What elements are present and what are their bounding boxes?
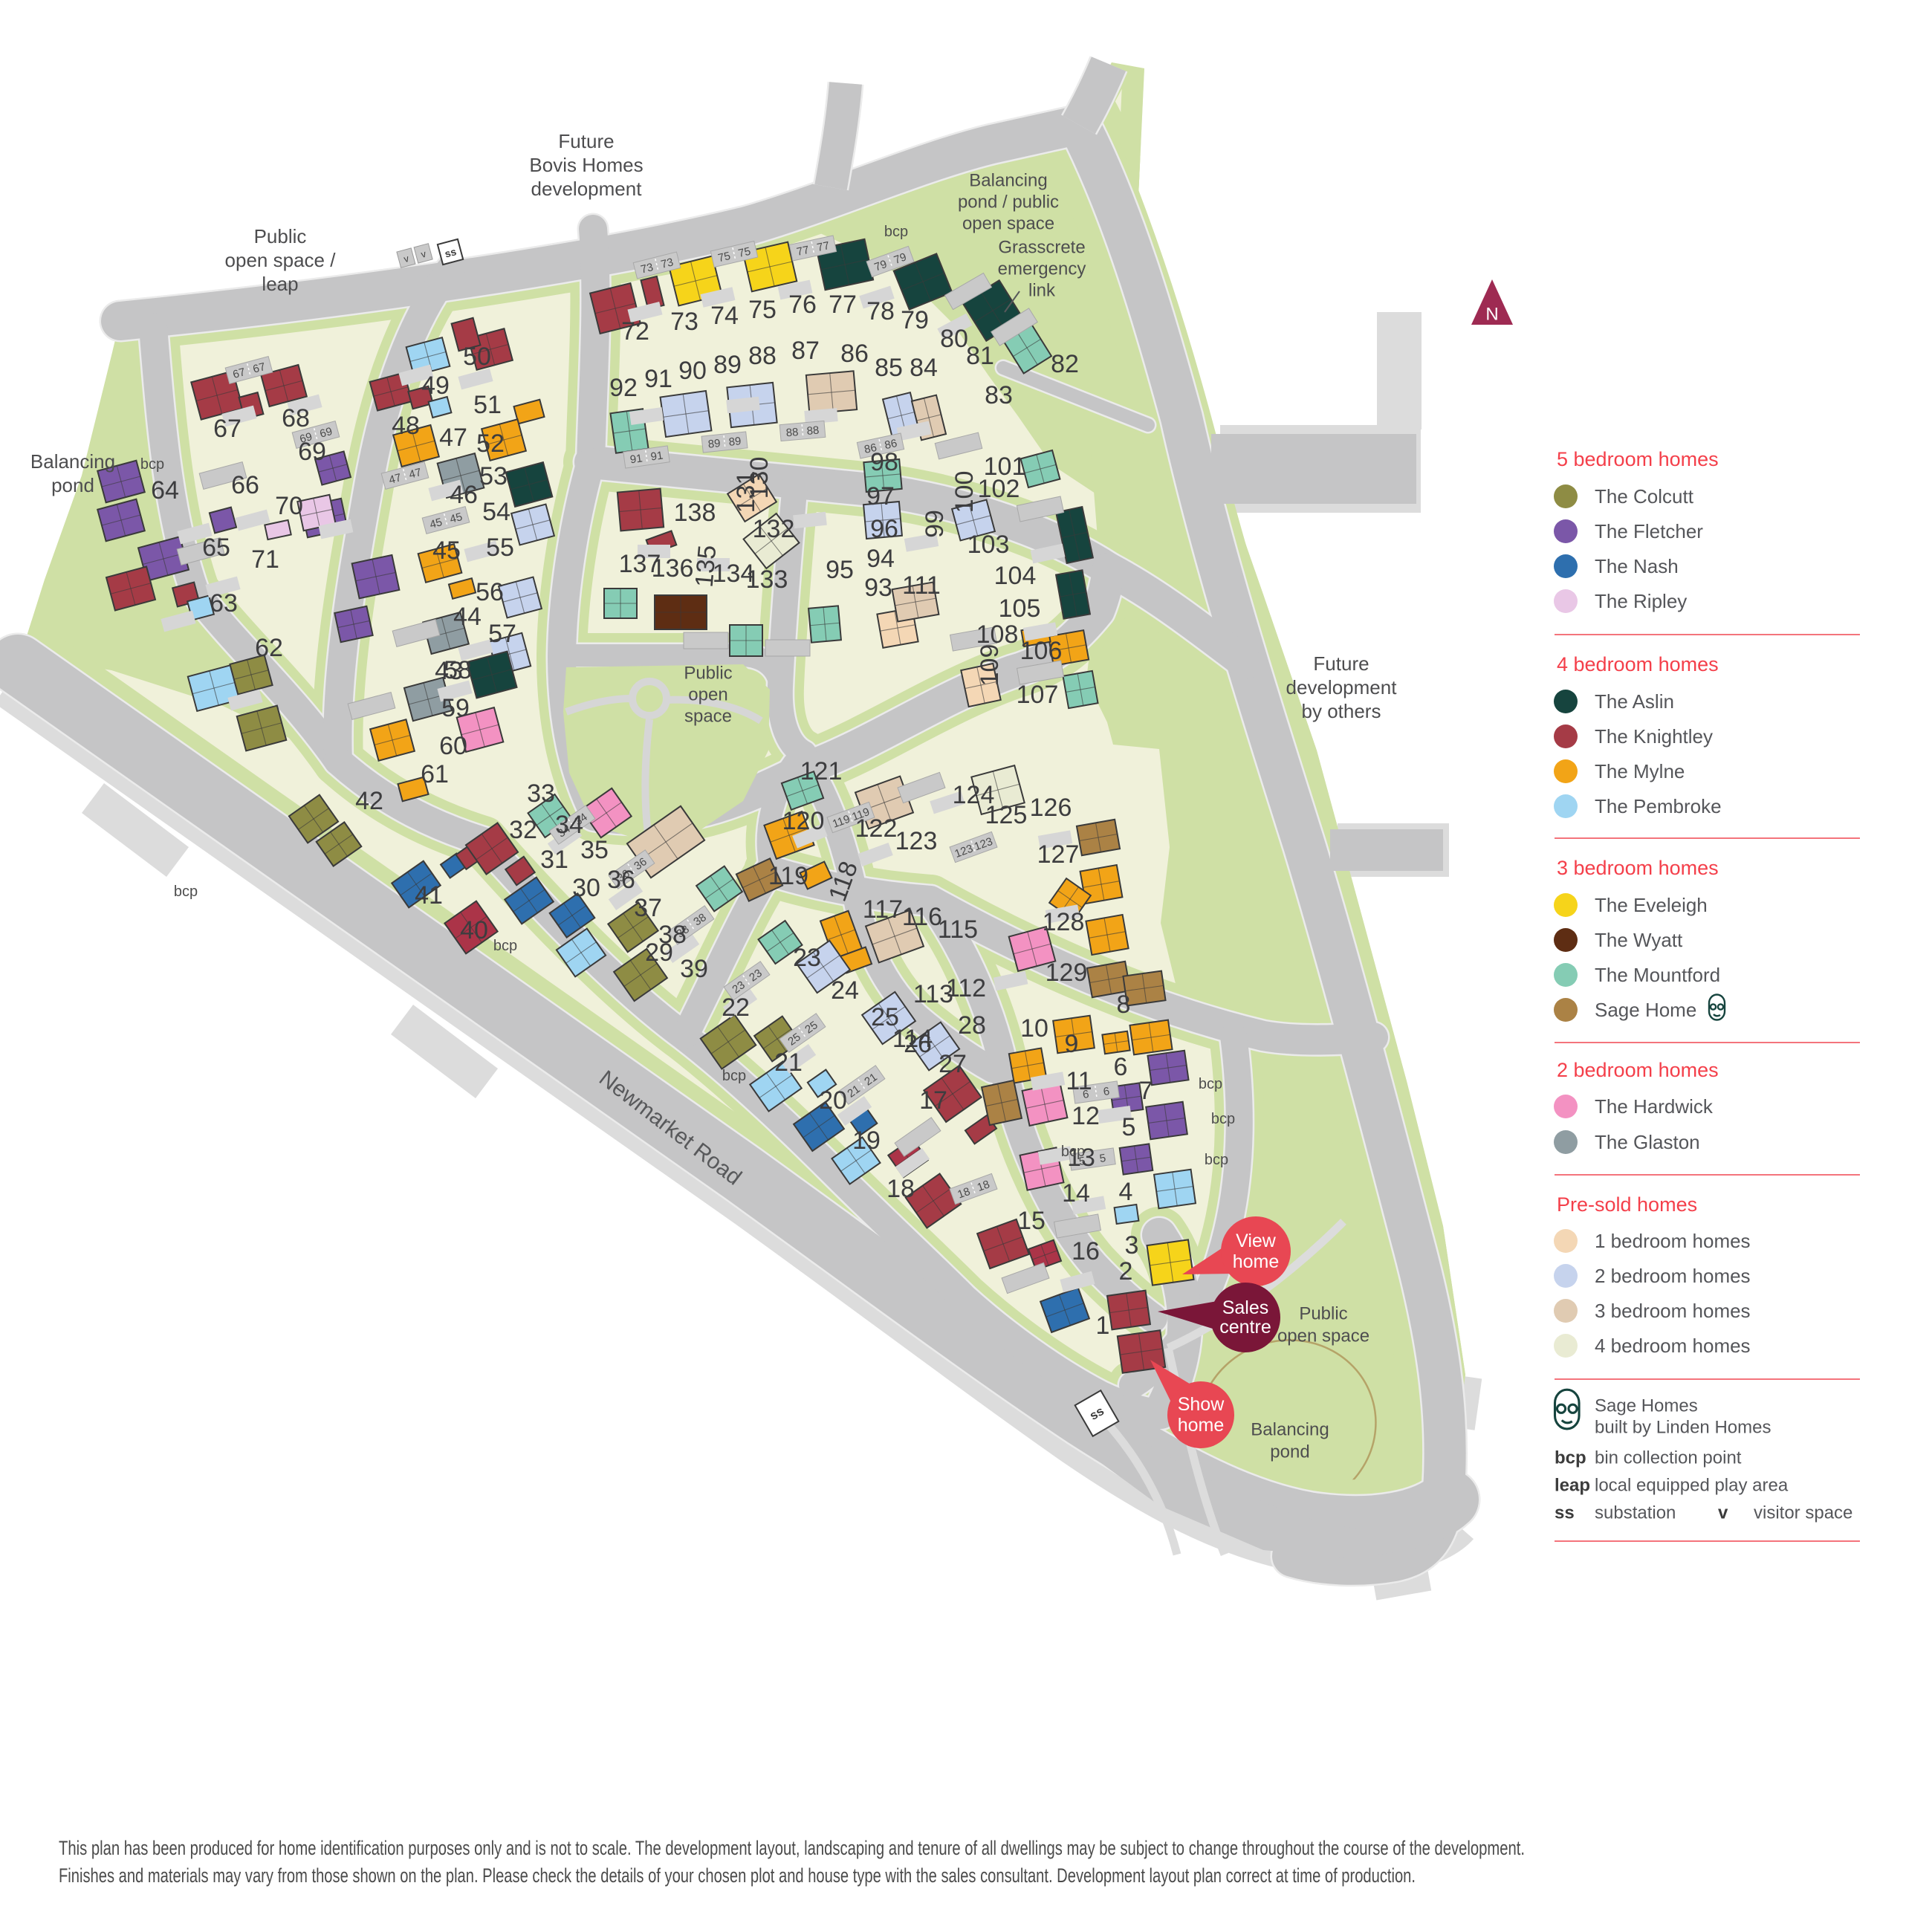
svg-text:leap: leap	[1555, 1476, 1590, 1496]
svg-text:1 bedroom homes: 1 bedroom homes	[1595, 1230, 1751, 1252]
svg-text:2 bedroom homes: 2 bedroom homes	[1595, 1265, 1751, 1287]
svg-text:Balancing: Balancing	[969, 171, 1047, 191]
svg-text:91: 91	[644, 365, 672, 393]
svg-text:29: 29	[645, 939, 673, 967]
svg-text:103: 103	[967, 531, 1010, 559]
svg-text:bcp: bcp	[1199, 1076, 1222, 1092]
svg-text:2: 2	[1119, 1257, 1133, 1286]
svg-text:57: 57	[488, 620, 516, 648]
svg-text:development: development	[531, 178, 643, 200]
svg-text:bcp: bcp	[140, 456, 164, 473]
svg-text:138: 138	[674, 499, 716, 527]
svg-text:107: 107	[1017, 681, 1059, 709]
svg-text:58: 58	[444, 656, 472, 684]
svg-text:Pre-sold homes: Pre-sold homes	[1557, 1193, 1697, 1216]
svg-text:136: 136	[652, 554, 694, 583]
svg-text:home: home	[1233, 1251, 1280, 1272]
svg-text:63: 63	[210, 589, 238, 617]
svg-text:99: 99	[921, 510, 949, 538]
svg-text:86: 86	[840, 340, 869, 368]
svg-text:47: 47	[439, 424, 467, 452]
svg-text:bcp: bcp	[722, 1068, 746, 1084]
svg-text:bcp: bcp	[1211, 1111, 1235, 1127]
svg-text:8: 8	[1117, 991, 1131, 1019]
svg-text:2 bedroom homes: 2 bedroom homes	[1557, 1059, 1719, 1081]
svg-text:52: 52	[476, 429, 505, 458]
svg-text:34: 34	[555, 811, 583, 839]
svg-text:45: 45	[432, 537, 461, 565]
svg-text:25: 25	[871, 1003, 899, 1031]
svg-text:129: 129	[1046, 959, 1088, 987]
svg-text:97: 97	[866, 482, 895, 510]
svg-text:emergency: emergency	[998, 259, 1086, 279]
svg-text:81: 81	[966, 342, 994, 370]
svg-text:120: 120	[782, 807, 825, 835]
svg-text:home: home	[1178, 1415, 1225, 1436]
svg-text:133: 133	[746, 565, 788, 594]
svg-text:104: 104	[994, 562, 1037, 590]
svg-text:Balancing: Balancing	[30, 450, 115, 473]
svg-text:42: 42	[355, 787, 383, 815]
svg-text:7: 7	[1139, 1077, 1153, 1105]
svg-text:14: 14	[1062, 1179, 1090, 1207]
svg-text:65: 65	[202, 534, 230, 562]
svg-text:84: 84	[910, 354, 938, 382]
svg-text:53: 53	[479, 462, 508, 490]
svg-text:The Colcutt: The Colcutt	[1595, 485, 1694, 508]
svg-text:Sage Homes: Sage Homes	[1595, 1396, 1698, 1416]
svg-text:Sales: Sales	[1222, 1297, 1269, 1318]
svg-text:leap: leap	[262, 273, 298, 295]
svg-text:77: 77	[796, 244, 811, 259]
svg-text:bcp: bcp	[493, 938, 517, 954]
svg-text:N: N	[1485, 305, 1498, 325]
svg-text:Balancing: Balancing	[1251, 1420, 1329, 1440]
svg-text:109: 109	[976, 644, 1004, 687]
svg-text:41: 41	[415, 881, 443, 910]
svg-text:60: 60	[439, 732, 467, 760]
svg-text:33: 33	[527, 779, 555, 808]
svg-text:28: 28	[958, 1011, 986, 1040]
svg-text:80: 80	[940, 325, 968, 353]
svg-text:49: 49	[421, 372, 450, 400]
svg-text:64: 64	[151, 476, 179, 505]
svg-text:Show: Show	[1178, 1394, 1225, 1415]
svg-text:20: 20	[819, 1086, 847, 1115]
svg-text:24: 24	[831, 976, 859, 1005]
svg-text:117: 117	[863, 895, 903, 924]
svg-text:89: 89	[713, 351, 742, 379]
svg-text:54: 54	[482, 498, 510, 526]
svg-text:85: 85	[875, 354, 903, 382]
svg-text:The Fletcher: The Fletcher	[1595, 520, 1703, 542]
svg-text:4 bedroom homes: 4 bedroom homes	[1557, 653, 1719, 675]
svg-text:31: 31	[540, 846, 568, 874]
svg-text:48: 48	[392, 412, 420, 440]
svg-text:centre: centre	[1219, 1317, 1271, 1338]
svg-text:121: 121	[800, 757, 843, 785]
svg-text:bcp: bcp	[1061, 1144, 1085, 1160]
svg-text:bcp: bcp	[1555, 1448, 1586, 1468]
svg-text:30: 30	[572, 874, 600, 902]
svg-text:71: 71	[251, 545, 279, 574]
svg-text:Future: Future	[1313, 652, 1369, 675]
svg-text:131: 131	[732, 471, 760, 513]
svg-text:75: 75	[748, 296, 777, 324]
svg-text:69: 69	[298, 438, 326, 466]
svg-text:26: 26	[904, 1030, 932, 1058]
svg-text:Public: Public	[684, 664, 732, 684]
svg-text:9: 9	[1065, 1030, 1079, 1058]
svg-text:5 bedroom homes: 5 bedroom homes	[1557, 448, 1719, 470]
svg-text:12: 12	[1072, 1102, 1100, 1130]
svg-text:open space: open space	[962, 214, 1054, 234]
svg-text:127: 127	[1037, 840, 1080, 869]
svg-text:Sage Home: Sage Home	[1595, 999, 1696, 1021]
svg-text:55: 55	[486, 534, 514, 562]
svg-text:32: 32	[509, 816, 537, 844]
svg-text:35: 35	[580, 836, 609, 864]
svg-text:The Hardwick: The Hardwick	[1595, 1095, 1714, 1118]
svg-text:Grasscrete: Grasscrete	[998, 238, 1085, 258]
svg-text:The Eveleigh: The Eveleigh	[1595, 894, 1708, 916]
svg-text:119: 119	[768, 862, 808, 890]
svg-text:93: 93	[864, 574, 892, 602]
svg-text:The Glaston: The Glaston	[1595, 1131, 1700, 1153]
svg-text:91: 91	[650, 449, 664, 463]
svg-text:bcp: bcp	[884, 224, 908, 240]
svg-text:local equipped play area: local equipped play area	[1595, 1476, 1789, 1496]
svg-text:132: 132	[753, 515, 795, 543]
svg-text:61: 61	[421, 760, 449, 788]
svg-text:102: 102	[978, 475, 1020, 503]
svg-text:105: 105	[999, 594, 1041, 623]
svg-text:70: 70	[275, 492, 303, 520]
svg-text:36: 36	[607, 866, 635, 894]
svg-text:74: 74	[710, 302, 739, 330]
svg-text:3 bedroom homes: 3 bedroom homes	[1557, 857, 1719, 879]
svg-text:1: 1	[1096, 1312, 1110, 1340]
svg-text:77: 77	[816, 239, 831, 254]
svg-text:128: 128	[1043, 908, 1085, 936]
svg-text:66: 66	[231, 471, 259, 499]
svg-text:v: v	[1718, 1503, 1728, 1523]
svg-text:substation: substation	[1595, 1503, 1676, 1523]
svg-text:94: 94	[866, 545, 895, 573]
svg-text:17: 17	[919, 1086, 947, 1115]
svg-text:68: 68	[282, 404, 310, 432]
svg-text:62: 62	[255, 634, 283, 662]
svg-text:ss: ss	[1555, 1503, 1575, 1523]
svg-text:88: 88	[806, 424, 820, 438]
svg-text:The Mylne: The Mylne	[1595, 760, 1685, 782]
svg-text:11: 11	[1066, 1067, 1092, 1095]
svg-text:Public: Public	[1299, 1304, 1347, 1324]
svg-text:73: 73	[670, 308, 698, 336]
svg-text:98: 98	[870, 448, 898, 476]
svg-text:40: 40	[460, 916, 488, 944]
svg-text:123: 123	[895, 827, 938, 855]
svg-text:125: 125	[985, 801, 1028, 829]
svg-text:Finishes and materials may var: Finishes and materials may vary from tho…	[59, 1864, 1416, 1887]
svg-text:83: 83	[985, 381, 1013, 409]
svg-text:development: development	[1286, 676, 1398, 698]
svg-text:89: 89	[707, 437, 721, 451]
svg-text:pond / public: pond / public	[958, 192, 1059, 213]
svg-text:pond: pond	[51, 474, 94, 496]
svg-text:visitor space: visitor space	[1754, 1503, 1852, 1523]
svg-text:27: 27	[939, 1050, 967, 1078]
svg-text:122: 122	[855, 814, 898, 843]
svg-text:6: 6	[1114, 1053, 1128, 1081]
svg-text:78: 78	[866, 297, 895, 325]
svg-text:10: 10	[1020, 1014, 1048, 1043]
svg-text:77: 77	[829, 291, 857, 319]
svg-text:50: 50	[463, 343, 491, 371]
svg-text:The Mountford: The Mountford	[1595, 964, 1720, 986]
svg-text:The Aslin: The Aslin	[1595, 690, 1674, 713]
svg-text:This plan has been produced fo: This plan has been produced for home ide…	[59, 1837, 1525, 1859]
svg-text:67: 67	[213, 415, 241, 443]
svg-text:39: 39	[680, 955, 708, 983]
svg-text:44: 44	[453, 603, 482, 631]
svg-text:View: View	[1236, 1231, 1277, 1251]
svg-text:100: 100	[950, 471, 979, 513]
svg-text:92: 92	[609, 374, 638, 402]
svg-text:106: 106	[1020, 637, 1063, 665]
svg-text:126: 126	[1030, 794, 1072, 822]
svg-text:The Nash: The Nash	[1595, 555, 1679, 577]
svg-text:pond: pond	[1270, 1442, 1309, 1462]
svg-text:111: 111	[902, 571, 941, 600]
svg-text:bcp: bcp	[1205, 1152, 1228, 1168]
svg-text:bin collection point: bin collection point	[1595, 1448, 1742, 1468]
svg-text:79: 79	[901, 306, 929, 334]
svg-text:115: 115	[938, 915, 978, 944]
svg-text:72: 72	[621, 317, 649, 346]
svg-text:46: 46	[450, 481, 478, 509]
svg-text:37: 37	[634, 894, 662, 922]
svg-text:bcp: bcp	[174, 884, 198, 900]
svg-text:The Ripley: The Ripley	[1595, 590, 1687, 612]
svg-text:space: space	[684, 707, 732, 727]
svg-text:3 bedroom homes: 3 bedroom homes	[1595, 1300, 1751, 1322]
svg-text:113: 113	[913, 980, 953, 1008]
svg-text:The Pembroke: The Pembroke	[1595, 795, 1722, 817]
svg-text:19: 19	[852, 1127, 881, 1155]
svg-text:The Knightley: The Knightley	[1595, 725, 1713, 748]
svg-text:95: 95	[826, 556, 854, 584]
svg-text:22: 22	[722, 993, 750, 1022]
svg-text:21: 21	[774, 1048, 803, 1077]
svg-text:76: 76	[788, 291, 817, 319]
svg-text:open space: open space	[1277, 1326, 1369, 1346]
svg-text:88: 88	[785, 426, 799, 439]
svg-text:Public: Public	[254, 225, 307, 247]
svg-text:built by Linden Homes: built by Linden Homes	[1595, 1418, 1771, 1438]
svg-text:5: 5	[1122, 1113, 1136, 1141]
svg-text:89: 89	[728, 435, 742, 449]
svg-text:51: 51	[473, 391, 502, 419]
svg-text:open: open	[688, 685, 727, 705]
svg-text:88: 88	[748, 342, 777, 370]
svg-text:4 bedroom homes: 4 bedroom homes	[1595, 1335, 1751, 1357]
svg-text:116: 116	[902, 903, 942, 931]
svg-text:4: 4	[1119, 1178, 1133, 1206]
svg-text:The Wyatt: The Wyatt	[1595, 929, 1683, 951]
svg-text:16: 16	[1072, 1237, 1100, 1265]
svg-text:82: 82	[1051, 350, 1079, 378]
svg-text:59: 59	[441, 694, 470, 722]
svg-text:Bovis Homes: Bovis Homes	[529, 154, 643, 176]
svg-text:23: 23	[793, 944, 821, 972]
svg-text:91: 91	[629, 452, 644, 466]
svg-text:by others: by others	[1302, 700, 1381, 722]
svg-text:link: link	[1028, 281, 1056, 301]
svg-text:open space /: open space /	[225, 249, 337, 271]
svg-text:15: 15	[1017, 1207, 1046, 1235]
svg-text:3: 3	[1125, 1231, 1139, 1260]
svg-text:Future: Future	[558, 130, 614, 152]
svg-text:96: 96	[870, 515, 898, 543]
svg-text:87: 87	[791, 337, 820, 365]
svg-text:90: 90	[678, 357, 707, 385]
svg-text:18: 18	[886, 1175, 915, 1203]
